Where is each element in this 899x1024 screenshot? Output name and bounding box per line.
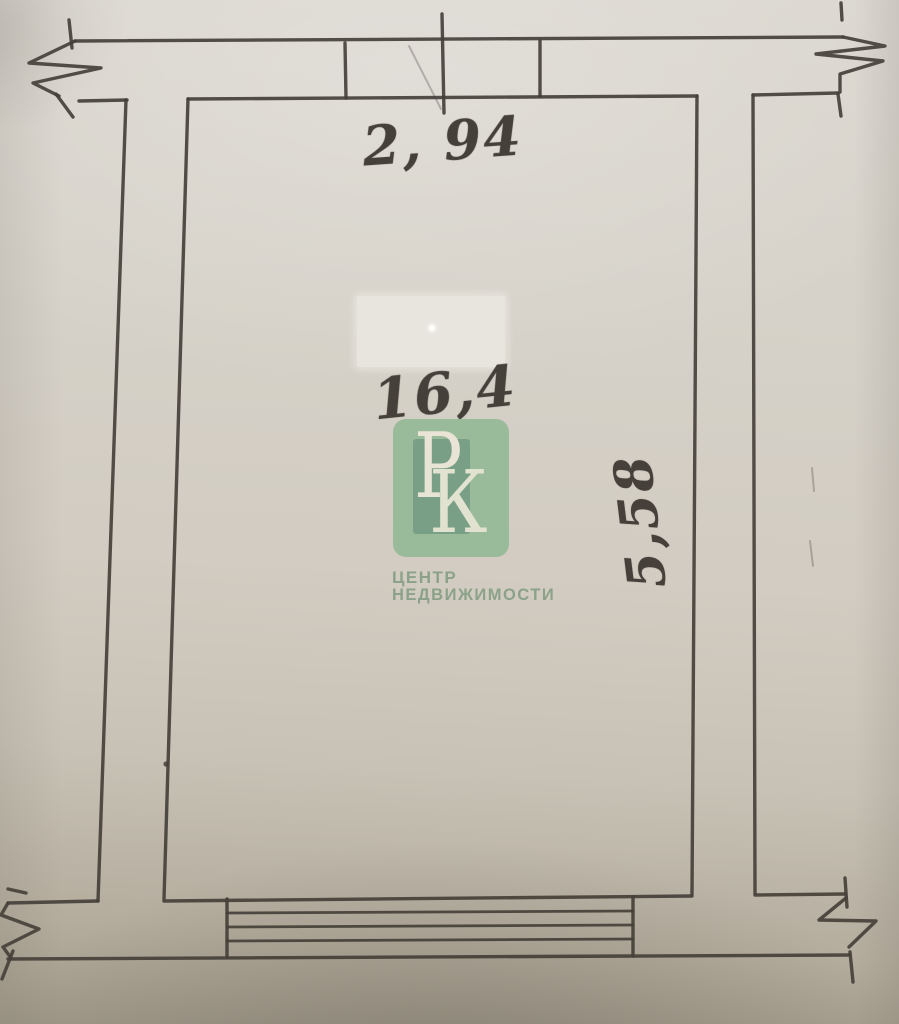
bottom-wall-inner-line-mid <box>164 896 692 901</box>
watermark-logo: Р К <box>393 419 509 557</box>
break-mark-bottom-left <box>1 889 39 958</box>
watermark-letter-k: К <box>429 460 488 546</box>
window-tick-left <box>345 43 346 98</box>
pencil-mark-1 <box>812 468 814 491</box>
break-mark-top-left <box>29 41 101 117</box>
left-wall-outer-line <box>98 100 126 901</box>
top-wall <box>69 3 843 101</box>
pencil-slash <box>409 46 441 109</box>
bottom-wall <box>2 878 849 979</box>
top-wall-inner-line-left <box>79 100 127 101</box>
break-stroke <box>850 952 853 982</box>
dimension-tick-bottom-right <box>845 878 847 907</box>
break-mark-top-right <box>816 37 885 116</box>
dimension-width-label: 2, 94 <box>348 97 538 185</box>
dimension-height-label: 5,58 <box>585 442 695 600</box>
watermark-caption-line1: ЦЕНТР <box>392 568 457 588</box>
white-speck <box>429 325 435 331</box>
sill-line-3 <box>227 939 633 941</box>
break-stroke <box>838 94 841 116</box>
break-stroke <box>56 94 73 117</box>
window-center-tick <box>442 14 444 113</box>
left-wall <box>98 99 188 901</box>
break-zigzag <box>29 41 101 96</box>
sill-line-1 <box>227 911 633 913</box>
right-wall <box>692 95 755 894</box>
right-wall-outer-line <box>753 95 755 893</box>
floor-plan-photo: 2, 94 16,4 5,58 Р К ЦЕНТР НЕДВИЖИМОСТИ <box>0 0 899 1024</box>
pencil-mark-2 <box>810 541 813 566</box>
bottom-wall-inner-line-right <box>755 894 845 895</box>
break-zigzag <box>816 37 885 92</box>
left-wall-inner-line <box>164 99 188 899</box>
bottom-wall-outer-line <box>8 955 849 959</box>
dimension-width-value: 2, 94 <box>360 103 524 178</box>
ink-blot <box>163 761 168 766</box>
break-mark-bottom-right <box>819 898 876 982</box>
break-zigzag <box>1 903 39 958</box>
sill-line-2 <box>227 925 633 927</box>
dimension-height-value: 5,58 <box>602 450 679 591</box>
faint-pencil-marks <box>810 468 814 566</box>
dimension-tick-top-right <box>841 3 842 20</box>
watermark-caption-line2: НЕДВИЖИМОСТИ <box>392 586 555 605</box>
break-dash <box>8 889 26 893</box>
top-wall-inner-line-right <box>753 93 838 95</box>
bottom-wall-inner-line-left <box>8 901 98 903</box>
threshold-sill-symbol <box>227 897 633 957</box>
top-wall-outer-line <box>75 37 843 41</box>
